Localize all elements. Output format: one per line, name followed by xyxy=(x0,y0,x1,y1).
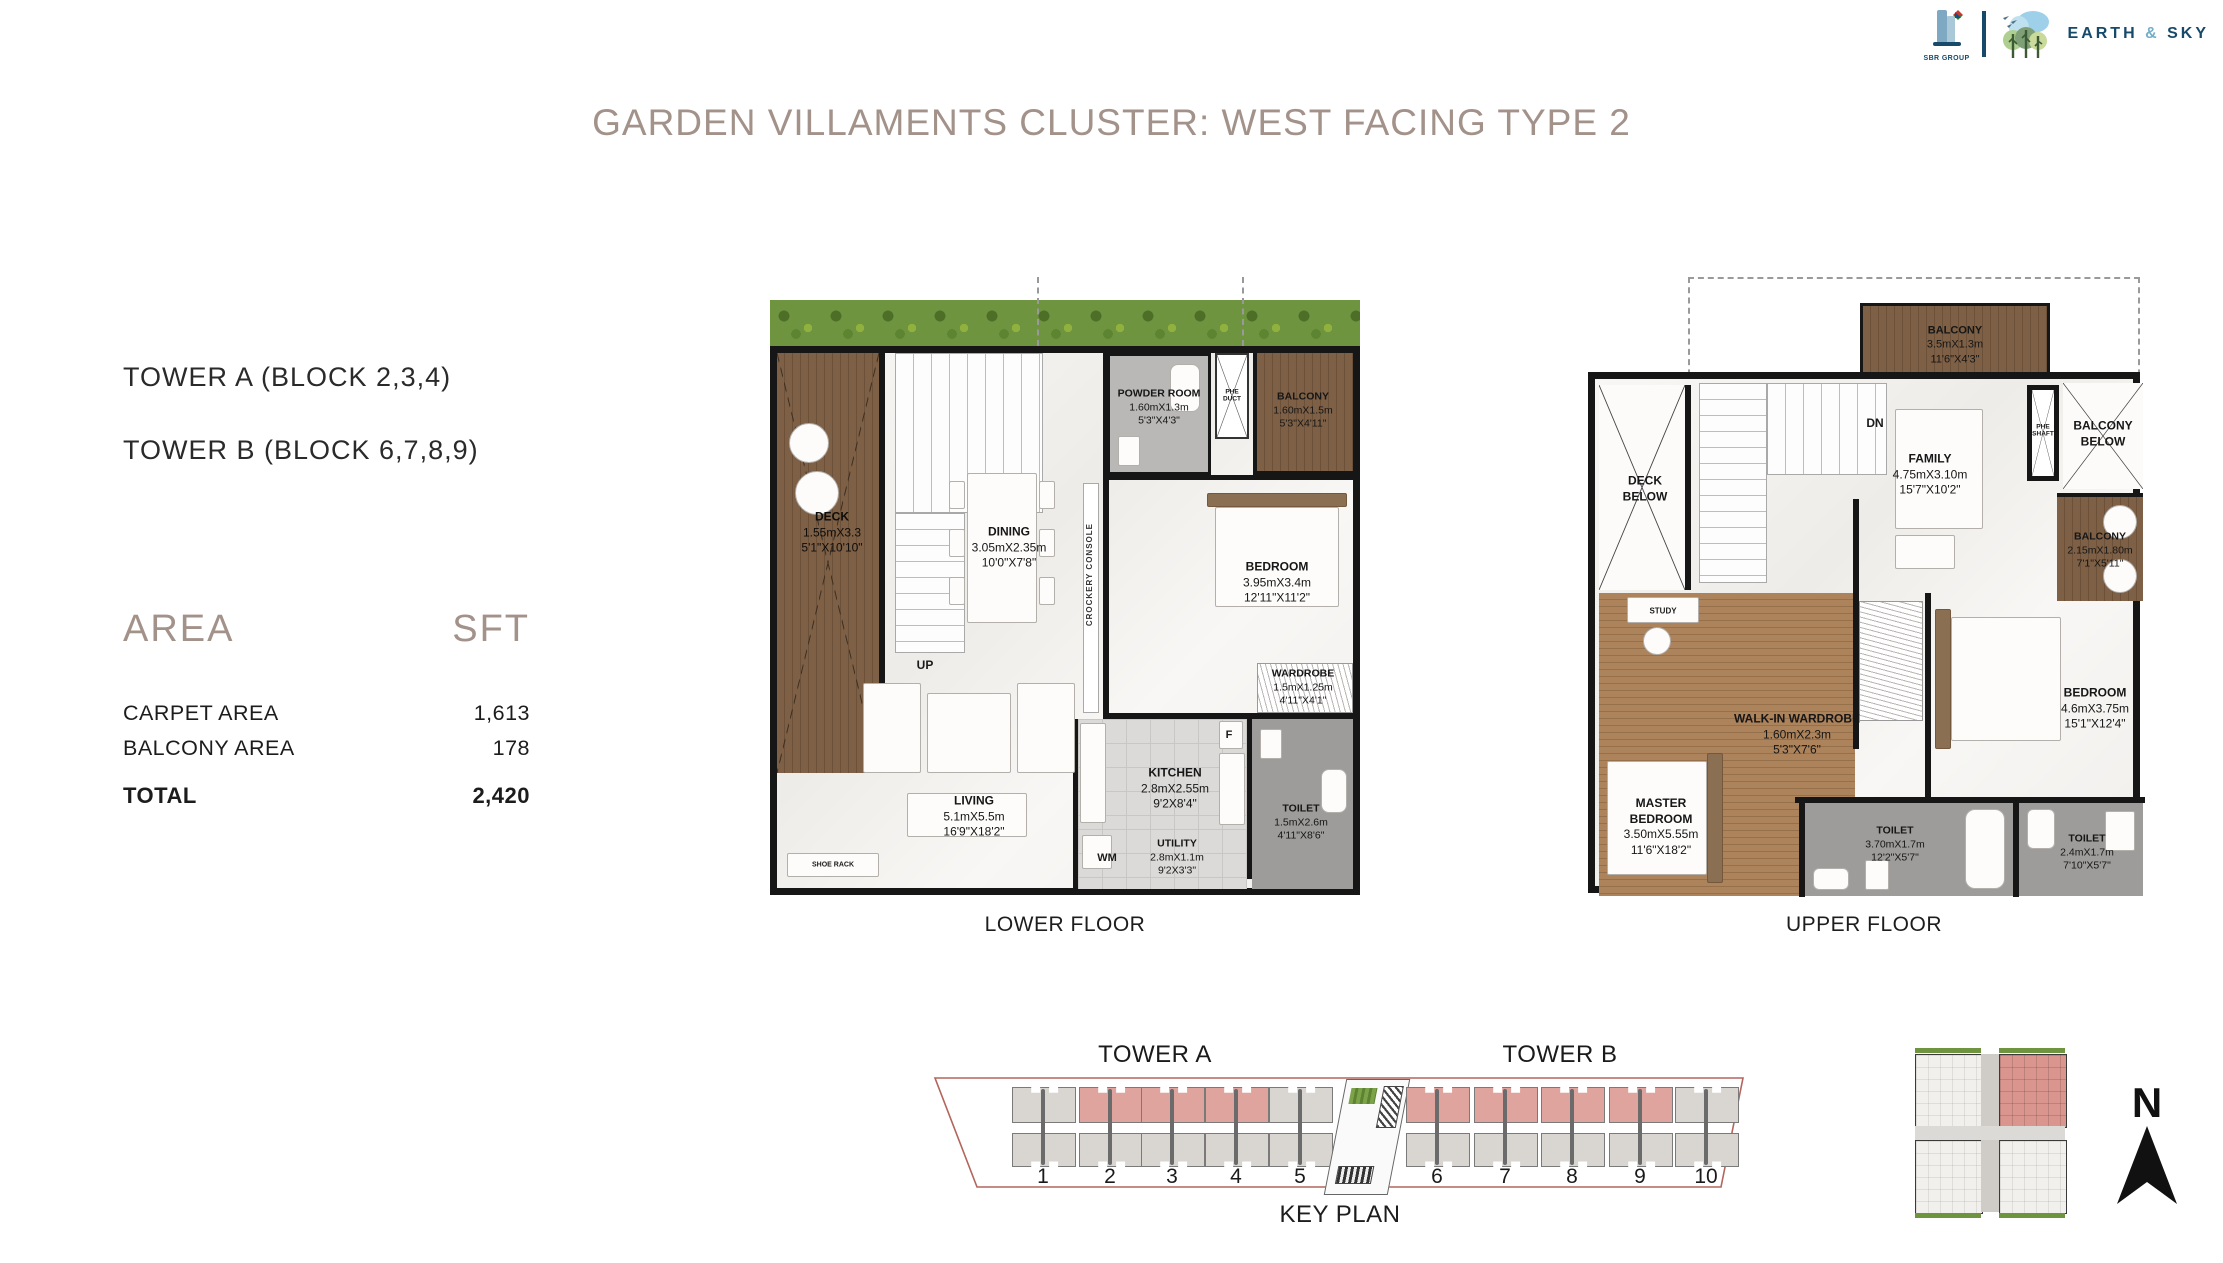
room-label-powder-room: POWDER ROOM 1.60mX1.3m 5'3"X4'3" xyxy=(1118,388,1201,429)
study-chair xyxy=(1643,627,1671,655)
room-label-walk-in-wardrobe: WALK-IN WARDROBE 1.60mX2.3m 5'3"X7'6" xyxy=(1734,712,1860,759)
total-value: 2,420 xyxy=(472,783,530,809)
sofa xyxy=(863,683,921,773)
wc-fixture xyxy=(1260,729,1282,759)
room-label-balcony-below: BALCONY BELOW xyxy=(2073,418,2132,449)
tower-b-line: TOWER B (BLOCK 6,7,8,9) xyxy=(123,435,479,466)
keyplan-core-garden xyxy=(1348,1088,1377,1104)
sbr-group-logo: SBR GROUP xyxy=(1921,6,1973,63)
wardrobe-hatch xyxy=(1859,601,1923,721)
keyplan-unit-number: 4 xyxy=(1205,1165,1267,1189)
keyplan-unit-number: 9 xyxy=(1609,1165,1671,1189)
keyplan-unit-number: 6 xyxy=(1406,1165,1468,1189)
dining-chair xyxy=(949,481,965,509)
bed xyxy=(1951,617,2061,741)
keyplan-unit-number: 7 xyxy=(1474,1165,1536,1189)
keyplan-unit xyxy=(1675,1087,1737,1167)
thumb-garden-strip xyxy=(1999,1213,2065,1218)
keyplan-unit xyxy=(1609,1087,1671,1167)
bed-headboard xyxy=(1935,609,1951,749)
earth-sky-label: EARTH & SKY xyxy=(2068,25,2209,43)
carpet-area-value: 1,613 xyxy=(474,701,530,726)
carpet-area-row: CARPET AREA 1,613 xyxy=(123,701,530,726)
area-table-header: AREA SFT xyxy=(123,608,530,651)
brochure-page: SBR GROUP EARTH & SKY GARDEN VILLAMENTS … xyxy=(0,0,2223,1263)
thumb-unit-highlighted xyxy=(1999,1054,2067,1128)
north-compass: N xyxy=(2112,1082,2182,1211)
kitchen-counter xyxy=(1219,753,1245,825)
phe-shaft-label: PHE SHAFT xyxy=(2032,424,2054,439)
balcony-area-row: BALCONY AREA 178 xyxy=(123,736,530,761)
sft-header: SFT xyxy=(452,608,530,651)
balcony-area-value: 178 xyxy=(493,736,530,761)
phe-duct-label: PHE DUCT xyxy=(1223,389,1241,404)
projection-line xyxy=(1242,277,1244,346)
stairs-upper-run xyxy=(1699,383,1767,583)
earth-word: EARTH xyxy=(2068,25,2138,42)
keyplan-unit xyxy=(1205,1087,1267,1167)
north-arrow-icon xyxy=(2113,1124,2181,1206)
keyplan-unit xyxy=(1406,1087,1468,1167)
keyplan-unit xyxy=(1474,1087,1536,1167)
sofa xyxy=(1017,683,1075,773)
thumb-unit xyxy=(1999,1140,2067,1214)
upper-floor-body: PHE SHAFT STUDY xyxy=(1588,372,2140,893)
keyplan-unit xyxy=(1269,1087,1331,1167)
sbr-building-icon xyxy=(1925,6,1969,50)
room-label-balcony: BALCONY 1.60mX1.5m 5'3"X4'11" xyxy=(1273,391,1333,432)
projection-line xyxy=(1037,277,1039,346)
sky-word: SKY xyxy=(2167,25,2209,42)
total-row: TOTAL 2,420 xyxy=(123,783,530,809)
thumb-unit xyxy=(1915,1054,1983,1128)
keyplan-unit-number: 2 xyxy=(1079,1165,1141,1189)
keyplan-unit xyxy=(1079,1087,1141,1167)
room-label-balcony-right: BALCONY 2.15mX1.80m 7'1"X5'11" xyxy=(2067,531,2132,572)
thumb-corridor xyxy=(1915,1126,2065,1140)
room-label-living: LIVING 5.1mX5.5m 16'9"X18'2" xyxy=(943,794,1004,841)
room-label-bedroom: BEDROOM 3.95mX3.4m 12'11"X11'2" xyxy=(1243,560,1311,607)
keyplan-unit-number: 1 xyxy=(1012,1165,1074,1189)
deck-chair xyxy=(789,423,829,463)
room-label-bedroom-upper: BEDROOM 4.6mX3.75m 15'1"X12'4" xyxy=(2061,686,2129,733)
ampersand: & xyxy=(2145,25,2160,42)
room-label-balcony-top: BALCONY 3.5mX1.3m 11'6"X4'3" xyxy=(1927,324,1983,367)
room-label-toilet-1: TOILET 3.70mX1.7m 12'2"X5'7" xyxy=(1865,825,1925,866)
room-label-deck: DECK 1.55mX3.3 5'1"X10'10" xyxy=(801,510,862,557)
keyplan-unit-number: 8 xyxy=(1541,1165,1603,1189)
bed-headboard xyxy=(1207,493,1347,507)
keyplan-unit-number: 5 xyxy=(1269,1165,1331,1189)
room-label-deck-below: DECK BELOW xyxy=(1623,473,1668,504)
room-label-family: FAMILY 4.75mX3.10m 15'7"X10'2" xyxy=(1893,452,1968,499)
keyplan-core-lift xyxy=(1335,1166,1374,1184)
room-label-wardrobe: WARDROBE 1.5mX1.25m 4'11"X4'1" xyxy=(1272,668,1334,709)
keyplan-unit xyxy=(1541,1087,1603,1167)
deck-chair xyxy=(795,471,839,515)
tower-a-line: TOWER A (BLOCK 2,3,4) xyxy=(123,362,451,393)
basin-fixture xyxy=(2027,809,2055,849)
dining-chair xyxy=(1039,577,1055,605)
lower-floor-body: CROCKERY CONSOLE PHE DUCT xyxy=(770,346,1360,895)
fridge-label: F xyxy=(1226,729,1233,741)
logo-divider xyxy=(1982,11,1986,57)
sbr-group-label: SBR GROUP xyxy=(1921,55,1973,63)
garden-strip xyxy=(770,300,1360,346)
keyplan-unit-number: 10 xyxy=(1675,1165,1737,1189)
dining-chair xyxy=(1039,481,1055,509)
wall xyxy=(1925,593,1931,803)
header-logos: SBR GROUP EARTH & SKY xyxy=(1921,6,2209,63)
dn-label: DN xyxy=(1866,416,1883,430)
basin-fixture xyxy=(1813,868,1849,890)
room-label-toilet-2: TOILET 2.4mX1.7m 7'10"X5'7" xyxy=(2060,833,2114,874)
shoe-rack-label: SHOE RACK xyxy=(812,862,854,869)
thumb-garden-strip xyxy=(1915,1048,1981,1053)
room-label-kitchen: KITCHEN 2.8mX2.55m 9'2X8'4" xyxy=(1141,766,1209,813)
area-header: AREA xyxy=(123,608,234,651)
keyplan-unit-number: 3 xyxy=(1141,1165,1203,1189)
total-label: TOTAL xyxy=(123,783,197,809)
keyplan-unit xyxy=(1141,1087,1203,1167)
lower-floor-caption: LOWER FLOOR xyxy=(770,913,1360,937)
room-label-master-bedroom: MASTER BEDROOM 3.50mX5.55m 11'6"X18'2" xyxy=(1624,796,1699,858)
keyplan-unit xyxy=(1012,1087,1074,1167)
dining-chair xyxy=(949,577,965,605)
bed-headboard xyxy=(1707,753,1723,883)
thumb-garden-strip xyxy=(1915,1213,1981,1218)
room-label-toilet: TOILET 1.5mX2.6m 4'11"X8'6" xyxy=(1274,803,1328,844)
wall xyxy=(1103,353,1109,713)
dining-chair xyxy=(949,529,965,557)
keyplan-core-stairs xyxy=(1376,1086,1404,1128)
center-table xyxy=(927,693,1011,773)
family-sofa xyxy=(1895,535,1955,569)
balcony-area-label: BALCONY AREA xyxy=(123,736,295,761)
wm-label: WM xyxy=(1097,852,1117,864)
page-title: GARDEN VILLAMENTS CLUSTER: WEST FACING T… xyxy=(0,102,2223,144)
bathtub xyxy=(1965,809,2005,889)
key-plan: TOWER A TOWER B 1 2 3 4 5 6 7 8 9 10 xyxy=(915,1035,1765,1235)
upper-floor-plan: BALCONY 3.5mX1.3m 11'6"X4'3" PHE SHAFT xyxy=(1588,277,2140,893)
up-label: UP xyxy=(917,658,934,672)
cluster-thumbnail xyxy=(1915,1048,2065,1218)
room-label-dining: DINING 3.05mX2.35m 10'0"X7'8" xyxy=(972,525,1047,572)
study-label: STUDY xyxy=(1649,607,1676,616)
carpet-area-label: CARPET AREA xyxy=(123,701,279,726)
thumb-unit xyxy=(1915,1140,1983,1214)
earth-sky-icon xyxy=(1995,8,2053,60)
wc-fixture xyxy=(1118,436,1140,466)
kitchen-counter xyxy=(1080,723,1106,823)
lower-floor-plan: CROCKERY CONSOLE PHE DUCT xyxy=(770,300,1360,895)
thumb-garden-strip xyxy=(1999,1048,2065,1053)
north-label: N xyxy=(2112,1082,2182,1124)
room-label-utility: UTILITY 2.8mX1.1m 9'2X3'3" xyxy=(1150,838,1204,879)
upper-floor-caption: UPPER FLOOR xyxy=(1588,913,2140,937)
wall xyxy=(1103,475,1353,480)
crockery-console-label: CROCKERY CONSOLE xyxy=(1085,523,1094,626)
keyplan-caption: KEY PLAN xyxy=(915,1201,1765,1229)
